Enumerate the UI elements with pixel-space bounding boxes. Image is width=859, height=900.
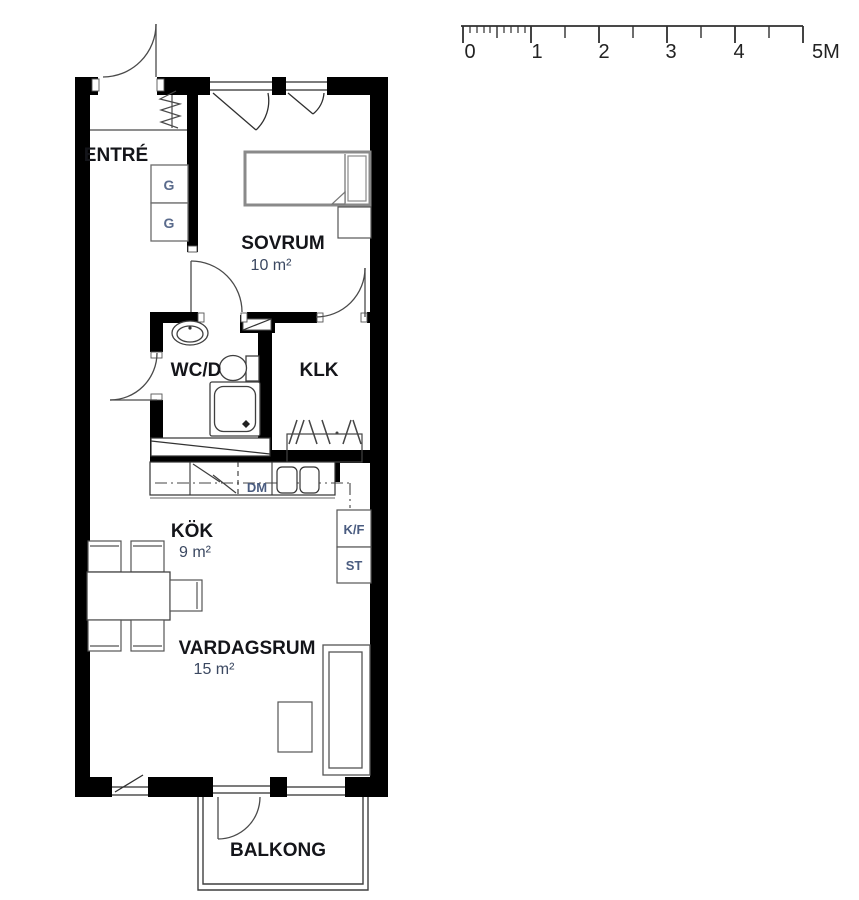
closet-g2-label: G <box>164 215 175 231</box>
vardagsrum-window-right <box>287 787 345 795</box>
scale-label-4: 4 <box>733 41 744 63</box>
left-wall <box>75 77 90 797</box>
sovrum-window-1 <box>210 82 272 130</box>
floor-plan-page: 0 1 2 3 4 5M <box>0 0 859 900</box>
coffee-table <box>278 702 312 752</box>
washbasin <box>172 321 208 345</box>
room-label-wcd: WC/D <box>171 360 222 381</box>
shower <box>210 382 260 436</box>
scale-bar: 0 1 2 3 4 5M <box>461 26 840 63</box>
scale-label-1: 1 <box>531 41 542 63</box>
room-label-sovrum: SOVRUM <box>241 233 324 254</box>
entrance-door <box>103 24 156 77</box>
room-labels: ENTRÉ SOVRUM 10 m² WC/D KLK KÖK 9 m² VAR… <box>84 144 339 861</box>
scale-bar-numbers: 0 1 2 3 4 5M <box>464 41 839 63</box>
room-label-kok: KÖK <box>171 521 214 542</box>
sovrum-window-2 <box>286 82 327 114</box>
scale-label-2: 2 <box>598 41 609 63</box>
room-area-vardagsrum: 15 m² <box>194 661 236 678</box>
entre-details <box>90 91 187 130</box>
sofa <box>323 645 370 775</box>
sovrum-door <box>191 261 242 312</box>
klk-door <box>316 268 365 317</box>
vardagsrum-window-left <box>112 775 148 795</box>
dining-table <box>87 572 170 620</box>
scale-label-3: 3 <box>665 41 676 63</box>
wcd-door <box>110 353 157 400</box>
closets: G G <box>151 165 188 241</box>
room-label-vardagsrum: VARDAGSRUM <box>179 638 316 659</box>
balcony-door-frame <box>213 786 270 793</box>
room-label-klk: KLK <box>299 360 338 381</box>
closet-g1-label: G <box>164 177 175 193</box>
scale-label-0: 0 <box>464 41 475 63</box>
cleaning-cabinet-label: ST <box>346 558 363 573</box>
room-label-entre: ENTRÉ <box>84 144 148 166</box>
room-label-balkong: BALKONG <box>230 840 326 861</box>
room-area-sovrum: 10 m² <box>251 257 293 274</box>
balcony-door <box>218 797 260 839</box>
wall-wedge <box>151 438 270 456</box>
scale-label-5m: 5M <box>812 41 840 63</box>
room-area-kok: 9 m² <box>179 544 212 561</box>
floor-plan-drawing: 0 1 2 3 4 5M <box>0 0 859 900</box>
door-jambs <box>92 79 367 400</box>
right-wall <box>370 77 388 797</box>
toilet <box>220 356 260 382</box>
scale-bar-half-ticks <box>497 26 769 38</box>
spring-symbol <box>160 91 180 128</box>
bed <box>245 152 370 205</box>
dishwasher-label: DM <box>247 480 267 495</box>
fridge-freezer-label: K/F <box>344 522 365 537</box>
nightstand <box>338 207 371 238</box>
